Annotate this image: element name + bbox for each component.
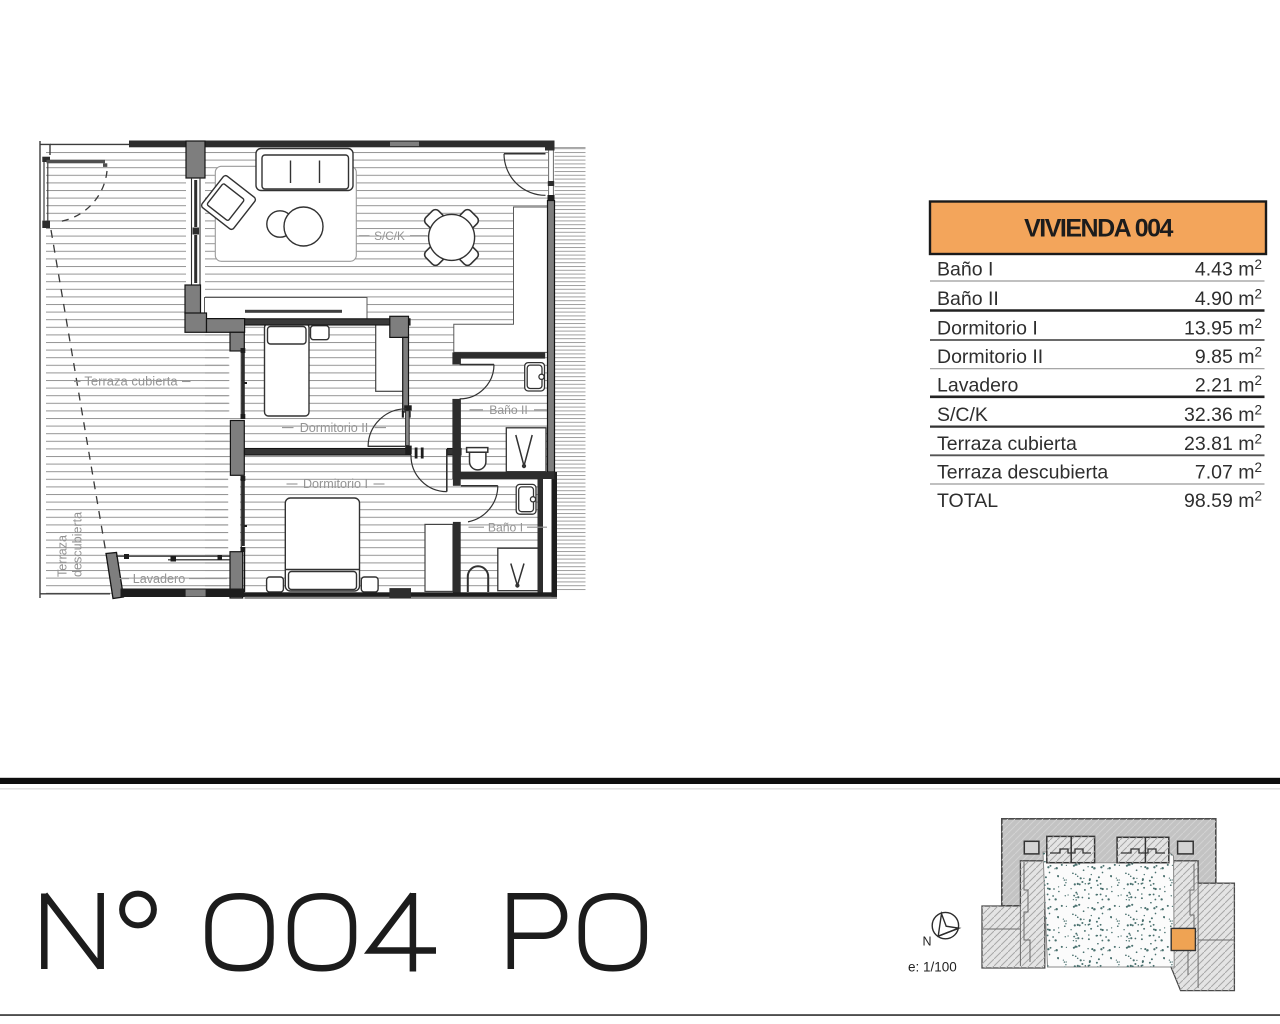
svg-text:Lavadero: Lavadero xyxy=(937,374,1018,396)
svg-text:TOTAL: TOTAL xyxy=(937,490,998,512)
svg-text:9.85 m2: 9.85 m2 xyxy=(1195,345,1262,369)
svg-text:VIVIENDA 004: VIVIENDA 004 xyxy=(1024,215,1173,243)
svg-text:S/C/K: S/C/K xyxy=(937,404,988,426)
svg-text:Baño I: Baño I xyxy=(488,520,523,534)
svg-text:N: N xyxy=(923,935,932,949)
svg-text:S/C/K: S/C/K xyxy=(374,229,405,243)
svg-text:Dormitorio II: Dormitorio II xyxy=(300,421,369,435)
svg-text:Terraza: Terraza xyxy=(56,535,70,577)
svg-text:Baño I: Baño I xyxy=(937,259,993,281)
svg-text:23.81 m2: 23.81 m2 xyxy=(1184,431,1262,455)
svg-text:Terraza descubierta: Terraza descubierta xyxy=(937,462,1108,484)
svg-text:13.95 m2: 13.95 m2 xyxy=(1184,316,1262,340)
svg-text:descubierta: descubierta xyxy=(71,512,85,577)
svg-text:Lavadero: Lavadero xyxy=(133,572,186,586)
svg-text:Terraza cubierta: Terraza cubierta xyxy=(84,374,178,389)
svg-text:Terraza cubierta: Terraza cubierta xyxy=(937,433,1077,455)
svg-text:32.36 m2: 32.36 m2 xyxy=(1184,403,1262,427)
svg-text:7.07 m2: 7.07 m2 xyxy=(1195,460,1262,484)
svg-text:Baño II: Baño II xyxy=(489,403,528,417)
svg-text:Dormitorio I: Dormitorio I xyxy=(303,477,368,491)
svg-text:Dormitorio II: Dormitorio II xyxy=(937,346,1043,368)
svg-text:4.43 m2: 4.43 m2 xyxy=(1195,257,1262,281)
svg-text:Baño II: Baño II xyxy=(937,288,999,310)
svg-text:Dormitorio I: Dormitorio I xyxy=(937,318,1038,340)
svg-text:2.21 m2: 2.21 m2 xyxy=(1195,373,1262,397)
svg-text:e: 1/100: e: 1/100 xyxy=(908,960,957,975)
svg-text:98.59 m2: 98.59 m2 xyxy=(1184,489,1262,513)
svg-text:4.90 m2: 4.90 m2 xyxy=(1195,287,1262,311)
